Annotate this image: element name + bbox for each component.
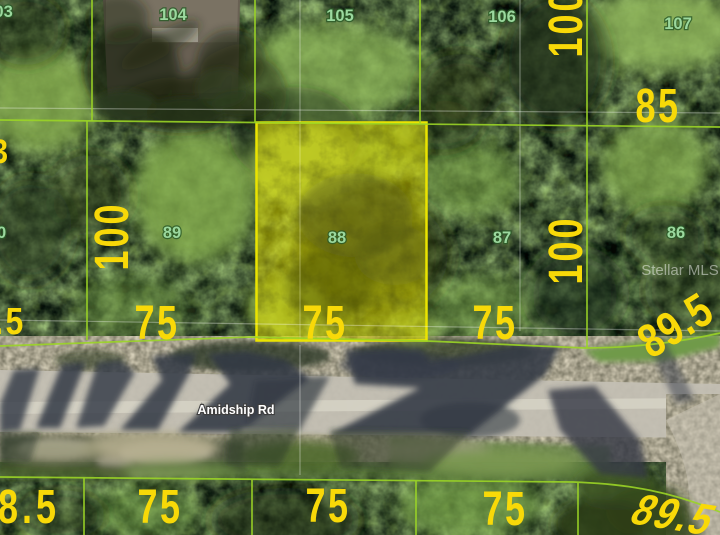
svg-text:104: 104 (159, 6, 187, 24)
svg-text:75: 75 (482, 482, 527, 535)
svg-text:75: 75 (134, 296, 179, 349)
svg-text:87: 87 (493, 229, 511, 247)
svg-text:103: 103 (0, 3, 13, 21)
svg-text:85: 85 (635, 79, 680, 132)
svg-text:106: 106 (488, 8, 516, 26)
svg-text:90: 90 (0, 224, 6, 242)
svg-text:.5: .5 (0, 300, 26, 342)
svg-text:86: 86 (667, 224, 685, 242)
svg-text:75: 75 (472, 296, 517, 349)
svg-text:75: 75 (137, 480, 182, 533)
svg-text:107: 107 (664, 15, 692, 33)
svg-text:100: 100 (539, 0, 592, 58)
svg-text:Stellar MLS: Stellar MLS (641, 262, 719, 279)
svg-text:75: 75 (302, 296, 347, 349)
svg-text:100: 100 (85, 201, 138, 270)
svg-text:88: 88 (328, 229, 346, 247)
svg-text:105: 105 (326, 7, 354, 25)
svg-text:Amidship Rd: Amidship Rd (197, 403, 274, 417)
svg-text:100: 100 (539, 215, 592, 284)
svg-text:3: 3 (0, 132, 11, 170)
svg-text:75: 75 (305, 479, 350, 532)
svg-text:8.5: 8.5 (0, 480, 60, 533)
svg-text:89: 89 (163, 224, 181, 242)
